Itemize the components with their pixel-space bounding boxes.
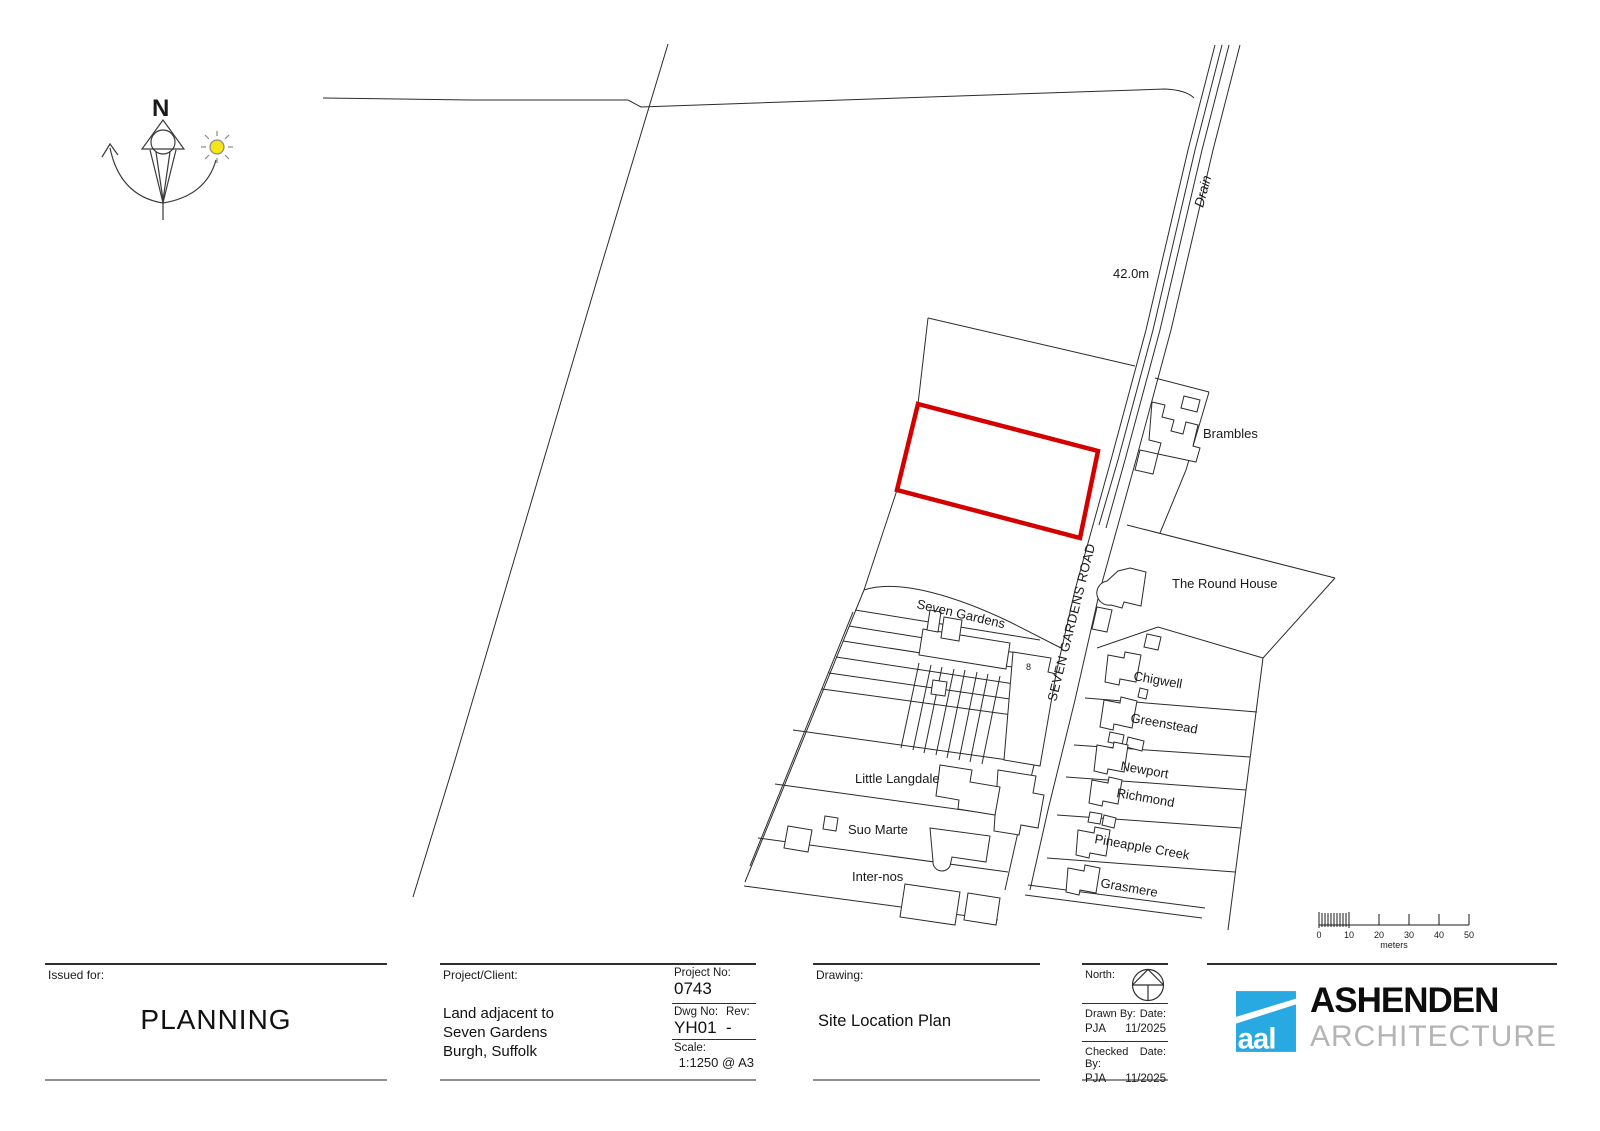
site-plan-map: Drain 42.0m Brambles The Round House Sev… bbox=[0, 0, 1600, 1131]
building-seven-gardens-terrace bbox=[919, 629, 1010, 669]
scale-tick-0: 0 bbox=[1316, 930, 1321, 940]
site-boundary-redline bbox=[897, 404, 1098, 538]
checked-date-value: 11/2025 bbox=[1125, 1073, 1166, 1085]
issued-for-label: Issued for: bbox=[45, 965, 387, 982]
scale-tick-10: 10 bbox=[1344, 930, 1354, 940]
titleblock-north-authors: North: Drawn By: Date: PJA 11/2025 bbox=[1082, 963, 1168, 1081]
scale-tick-40: 40 bbox=[1434, 930, 1444, 940]
label-spot-height: 42.0m bbox=[1113, 266, 1149, 281]
drawing-sheet: Drain 42.0m Brambles The Round House Sev… bbox=[0, 0, 1600, 1131]
rev-value: - bbox=[726, 1018, 732, 1038]
aal-logo-text: aal bbox=[1238, 1024, 1276, 1056]
north-arrow-letter: N bbox=[152, 95, 169, 122]
rev-label: Rev: bbox=[726, 1006, 750, 1018]
label-greenstead: Greenstead bbox=[1129, 710, 1199, 737]
scale-tick-50: 50 bbox=[1464, 930, 1474, 940]
drawing-title: Site Location Plan bbox=[813, 982, 1040, 1031]
sun-icon bbox=[201, 131, 233, 163]
drawing-label: Drawing: bbox=[813, 965, 1040, 982]
label-little-langdale: Little Langdale bbox=[855, 771, 940, 786]
track-lines bbox=[1025, 895, 1202, 918]
titleblock-numbers: Project No: 0743 Dwg No: Rev: YH01 - Sca… bbox=[672, 965, 756, 1079]
north-arrow: N bbox=[102, 95, 233, 220]
aal-logo-mark: aal bbox=[1236, 985, 1296, 1058]
dwg-no-label: Dwg No: bbox=[674, 1006, 726, 1018]
building-grasmere bbox=[1066, 865, 1100, 895]
checked-by-label: Checked By: bbox=[1085, 1046, 1140, 1070]
logo-name: ASHENDEN bbox=[1310, 983, 1557, 1019]
project-no-value: 0743 bbox=[674, 979, 756, 999]
label-newport: Newport bbox=[1119, 758, 1170, 781]
scale-value: 1:1250 @ A3 bbox=[674, 1055, 756, 1070]
logo-subname: ARCHITECTURE bbox=[1310, 1021, 1557, 1053]
north-label: North: bbox=[1085, 969, 1115, 981]
label-plot-number: 8 bbox=[1026, 662, 1031, 672]
field-boundaries bbox=[323, 44, 1194, 897]
label-suo-marte: Suo Marte bbox=[848, 822, 908, 837]
label-road-name: SEVEN GARDENS ROAD bbox=[1044, 542, 1098, 703]
label-inter-nos: Inter-nos bbox=[852, 869, 904, 884]
scale-bar: 0 10 20 30 40 50 meters bbox=[1316, 912, 1474, 950]
logo-wordmark: ASHENDEN ARCHITECTURE bbox=[1310, 985, 1557, 1053]
drawn-date-value: 11/2025 bbox=[1125, 1023, 1166, 1035]
project-no-label: Project No: bbox=[674, 967, 756, 979]
drawn-by-label: Drawn By: bbox=[1085, 1008, 1136, 1020]
scale-tick-20: 20 bbox=[1374, 930, 1384, 940]
building-suo-marte bbox=[930, 828, 990, 871]
drawn-date-label: Date: bbox=[1140, 1008, 1166, 1020]
scale-label: Scale: bbox=[674, 1042, 756, 1054]
label-grasmere: Grasmere bbox=[1099, 875, 1159, 900]
issued-for-value: PLANNING bbox=[45, 1004, 387, 1036]
north-compass-icon bbox=[1130, 967, 1166, 1003]
label-round-house: The Round House bbox=[1172, 576, 1278, 591]
titleblock-issued-for: Issued for: PLANNING bbox=[45, 963, 387, 1081]
scale-tick-30: 30 bbox=[1404, 930, 1414, 940]
checked-by-value: PJA bbox=[1085, 1073, 1106, 1085]
titleblock-project-client: Project/Client: Land adjacent to Seven G… bbox=[440, 963, 756, 1081]
label-richmond: Richmond bbox=[1115, 785, 1175, 810]
dwg-no-value: YH01 bbox=[674, 1018, 726, 1038]
label-brambles: Brambles bbox=[1203, 426, 1258, 441]
checked-date-label: Date: bbox=[1140, 1046, 1166, 1070]
building-inter-nos bbox=[900, 884, 960, 925]
label-pineapple-creek: Pineapple Creek bbox=[1093, 831, 1191, 863]
map-labels: Drain 42.0m Brambles The Round House Sev… bbox=[848, 174, 1278, 900]
drawn-by-value: PJA bbox=[1085, 1023, 1106, 1035]
scale-unit: meters bbox=[1380, 940, 1408, 950]
titleblock-drawing: Drawing: Site Location Plan bbox=[813, 963, 1040, 1081]
titleblock-logo: aal ASHENDEN ARCHITECTURE bbox=[1207, 963, 1557, 1081]
